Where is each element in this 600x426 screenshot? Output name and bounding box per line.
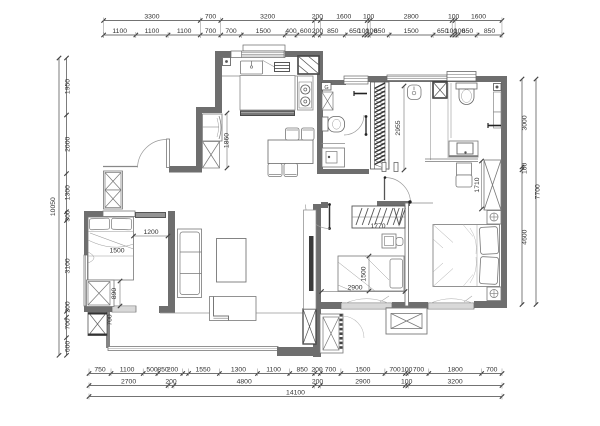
svg-text:1100: 1100 xyxy=(177,28,192,35)
svg-text:200: 200 xyxy=(312,28,324,35)
svg-text:200: 200 xyxy=(65,301,72,313)
svg-text:1500: 1500 xyxy=(355,366,370,373)
svg-text:2800: 2800 xyxy=(404,13,419,20)
svg-text:2900: 2900 xyxy=(347,285,362,292)
svg-text:1300: 1300 xyxy=(231,366,246,373)
svg-text:1550: 1550 xyxy=(195,366,210,373)
svg-text:14100: 14100 xyxy=(286,389,305,396)
svg-text:1300: 1300 xyxy=(65,185,72,200)
svg-text:1710: 1710 xyxy=(474,177,481,192)
svg-text:890: 890 xyxy=(111,288,118,300)
svg-text:3200: 3200 xyxy=(448,378,463,385)
svg-text:2955: 2955 xyxy=(395,120,402,135)
svg-text:2000: 2000 xyxy=(65,137,72,152)
svg-text:200: 200 xyxy=(165,378,177,385)
svg-text:400: 400 xyxy=(285,28,297,35)
svg-text:1600: 1600 xyxy=(336,13,351,20)
svg-text:100: 100 xyxy=(448,13,460,20)
svg-text:4800: 4800 xyxy=(237,378,252,385)
svg-text:700: 700 xyxy=(325,366,337,373)
svg-text:750: 750 xyxy=(94,366,106,373)
svg-text:850: 850 xyxy=(296,366,308,373)
svg-text:200: 200 xyxy=(312,378,324,385)
svg-text:700: 700 xyxy=(205,13,217,20)
svg-text:850: 850 xyxy=(484,28,496,35)
svg-text:2700: 2700 xyxy=(121,378,136,385)
svg-text:1500: 1500 xyxy=(361,266,368,281)
svg-text:1500: 1500 xyxy=(404,28,419,35)
svg-text:100: 100 xyxy=(363,13,375,20)
svg-text:100: 100 xyxy=(401,366,413,373)
svg-text:1800: 1800 xyxy=(448,366,463,373)
svg-text:1100: 1100 xyxy=(120,366,135,373)
svg-text:700: 700 xyxy=(389,366,401,373)
svg-text:850: 850 xyxy=(327,28,339,35)
svg-text:1100: 1100 xyxy=(112,28,127,35)
svg-text:700: 700 xyxy=(205,28,217,35)
svg-text:3100: 3100 xyxy=(65,258,72,273)
svg-text:200: 200 xyxy=(312,13,324,20)
svg-text:3300: 3300 xyxy=(144,13,159,20)
svg-text:100: 100 xyxy=(522,162,529,174)
svg-text:1950: 1950 xyxy=(65,79,72,94)
svg-text:700: 700 xyxy=(65,318,72,330)
svg-text:1500: 1500 xyxy=(256,28,271,35)
svg-text:700: 700 xyxy=(486,366,498,373)
svg-text:1200: 1200 xyxy=(143,229,158,236)
svg-text:200: 200 xyxy=(167,366,179,373)
svg-text:1100: 1100 xyxy=(145,28,160,35)
svg-text:1600: 1600 xyxy=(471,13,486,20)
svg-text:1500: 1500 xyxy=(109,248,124,255)
svg-text:7700: 7700 xyxy=(535,184,542,199)
svg-text:3200: 3200 xyxy=(260,13,275,20)
svg-text:700: 700 xyxy=(413,366,425,373)
svg-text:600: 600 xyxy=(300,28,312,35)
svg-text:700: 700 xyxy=(225,28,237,35)
svg-text:1770: 1770 xyxy=(370,223,385,230)
svg-text:1100: 1100 xyxy=(266,366,281,373)
svg-text:650: 650 xyxy=(374,28,386,35)
svg-text:3000: 3000 xyxy=(522,115,529,130)
svg-text:2900: 2900 xyxy=(355,378,370,385)
svg-text:4600: 4600 xyxy=(522,229,529,244)
svg-text:600: 600 xyxy=(65,341,72,353)
svg-text:500: 500 xyxy=(146,366,158,373)
svg-text:300: 300 xyxy=(65,210,72,222)
svg-text:1860: 1860 xyxy=(224,133,231,148)
svg-text:200: 200 xyxy=(311,366,323,373)
svg-text:G: G xyxy=(324,85,328,91)
svg-text:100: 100 xyxy=(401,378,413,385)
svg-text:700: 700 xyxy=(107,314,114,326)
svg-text:10050: 10050 xyxy=(50,197,57,216)
svg-text:650: 650 xyxy=(462,28,474,35)
